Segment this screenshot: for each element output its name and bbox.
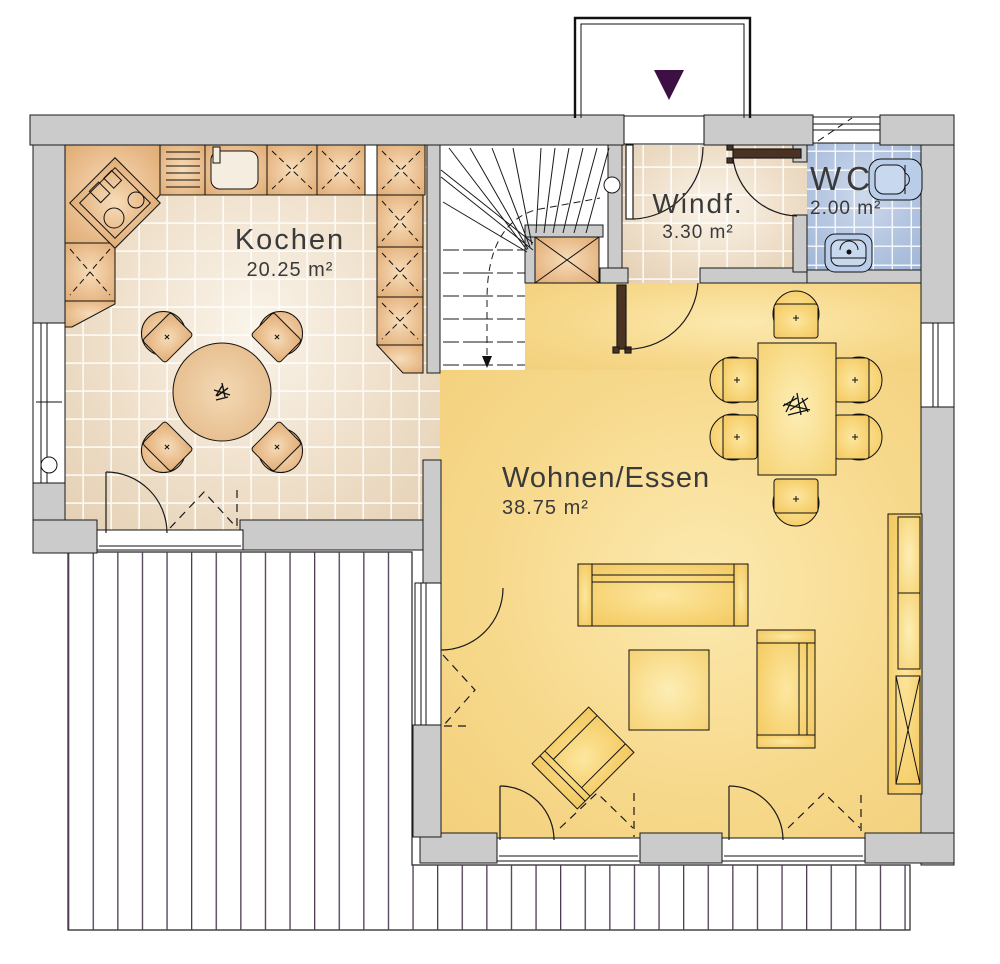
- window-living-west: [415, 583, 441, 725]
- entrance-arrow-icon: [654, 70, 684, 100]
- shaft-box: [535, 237, 599, 283]
- sofa: [578, 564, 748, 626]
- wall-stairs-vestibule: [608, 145, 622, 283]
- wall-right-upper: [921, 145, 954, 323]
- wall-west-lower: [413, 725, 441, 837]
- wall-top-left: [30, 115, 624, 145]
- wall-bottom-right: [865, 833, 954, 863]
- wall-bottom-pier: [640, 833, 722, 863]
- wall-vestibule-bottom-right: [700, 268, 807, 283]
- chair: [773, 291, 819, 338]
- chair: [710, 357, 757, 403]
- washbasin: [825, 234, 872, 272]
- wall-top-mid: [704, 115, 813, 145]
- kitchen-door-sill: [97, 530, 243, 550]
- sink-tap: [213, 147, 220, 163]
- dining-table: [758, 343, 836, 475]
- wall-left-upper: [33, 145, 65, 323]
- wall-top-right: [880, 115, 954, 145]
- chair: [835, 357, 882, 403]
- counter-gap: [365, 145, 377, 195]
- floor-plan-canvas: Kochen 20.25 m² Windf. 3.30 m² WC 2.00 m…: [0, 0, 1000, 964]
- wall-left-corner: [33, 520, 97, 553]
- plan-marker-circle: [41, 457, 57, 473]
- wall-kitchen-stairs: [427, 145, 440, 373]
- entrance-porch: [575, 18, 750, 118]
- wall-kitchen-bottom: [240, 520, 425, 550]
- entrance-opening: [624, 116, 704, 144]
- wall-kitchen-living: [423, 460, 441, 585]
- chair: [773, 479, 819, 526]
- kitchen-cabinet: [267, 145, 317, 195]
- plan-marker-circle: [604, 177, 620, 193]
- shelf-cabinet: [888, 514, 922, 794]
- stairs-direction-arrow: [482, 356, 492, 368]
- wall-left-lower: [33, 483, 65, 523]
- coffee-table: [629, 650, 709, 730]
- terrace-door-sill-2: [722, 838, 865, 861]
- wall-wc-stub-lower: [793, 215, 807, 272]
- armchair: [757, 630, 815, 748]
- floor-plan-drawing: [0, 0, 1000, 964]
- chair: [710, 414, 757, 460]
- wall-right-lower: [921, 407, 954, 865]
- wall-shaft-left: [525, 237, 535, 283]
- wall-vestibule-bottom-left: [600, 268, 628, 283]
- terrace-door-sill-1: [497, 838, 640, 861]
- toilet: [869, 159, 922, 200]
- chair: [835, 414, 882, 460]
